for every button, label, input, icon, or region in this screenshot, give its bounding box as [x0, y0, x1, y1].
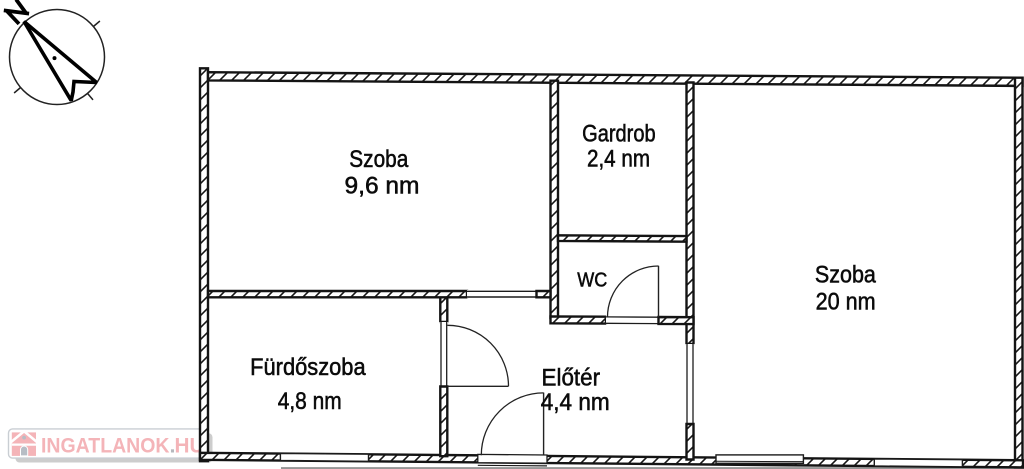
svg-text:4,4 nm: 4,4 nm [541, 389, 610, 416]
svg-text:WC: WC [577, 268, 607, 291]
svg-text:INGATLANOK: INGATLANOK [41, 434, 170, 458]
svg-text:2,4 nm: 2,4 nm [587, 146, 650, 173]
svg-text:Szoba: Szoba [349, 146, 408, 173]
svg-text:20 nm: 20 nm [816, 289, 876, 316]
svg-text:Szoba: Szoba [815, 262, 876, 289]
svg-text:4,8 nm: 4,8 nm [278, 388, 342, 415]
svg-text:9,6 nm: 9,6 nm [345, 173, 420, 200]
svg-text:Előtér: Előtér [542, 364, 601, 391]
svg-text:Fürdőszoba: Fürdőszoba [250, 354, 366, 381]
svg-text:Gardrob: Gardrob [582, 121, 656, 148]
